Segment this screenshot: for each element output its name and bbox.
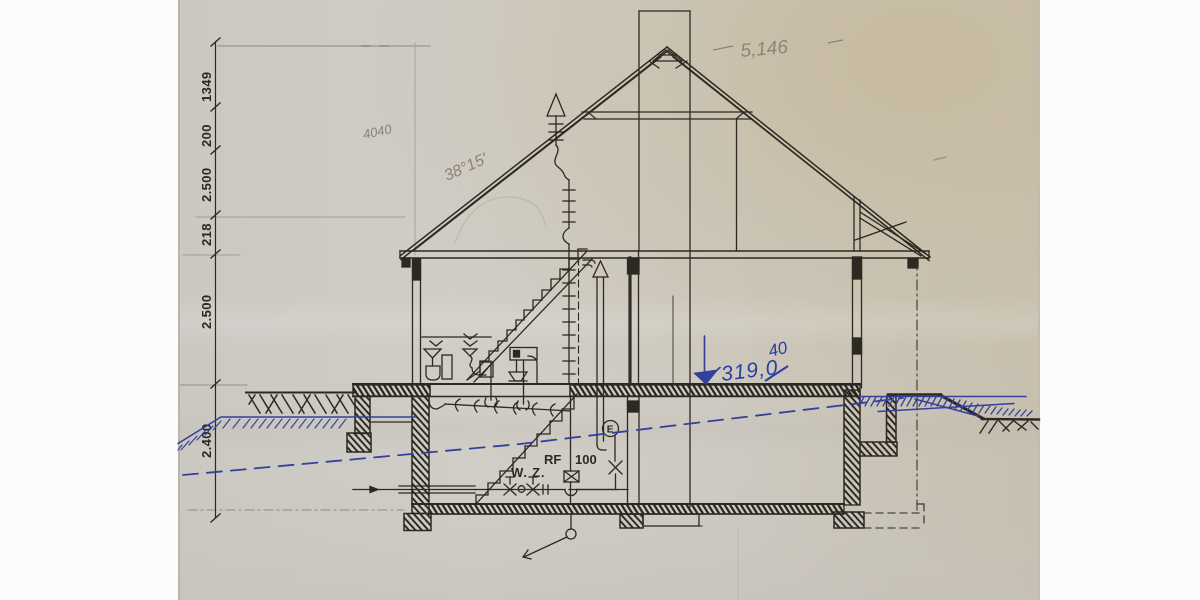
svg-text:E: E	[607, 425, 614, 436]
svg-text:5,146: 5,146	[740, 37, 790, 62]
svg-text:100: 100	[575, 452, 597, 467]
svg-text:1349: 1349	[199, 71, 214, 102]
svg-text:2.500: 2.500	[199, 167, 214, 202]
svg-text:2.500: 2.500	[199, 294, 214, 329]
svg-text:200: 200	[199, 124, 214, 147]
svg-text:218: 218	[199, 223, 214, 246]
svg-text:W. Z.: W. Z.	[511, 465, 545, 480]
svg-text:RF: RF	[544, 452, 561, 467]
